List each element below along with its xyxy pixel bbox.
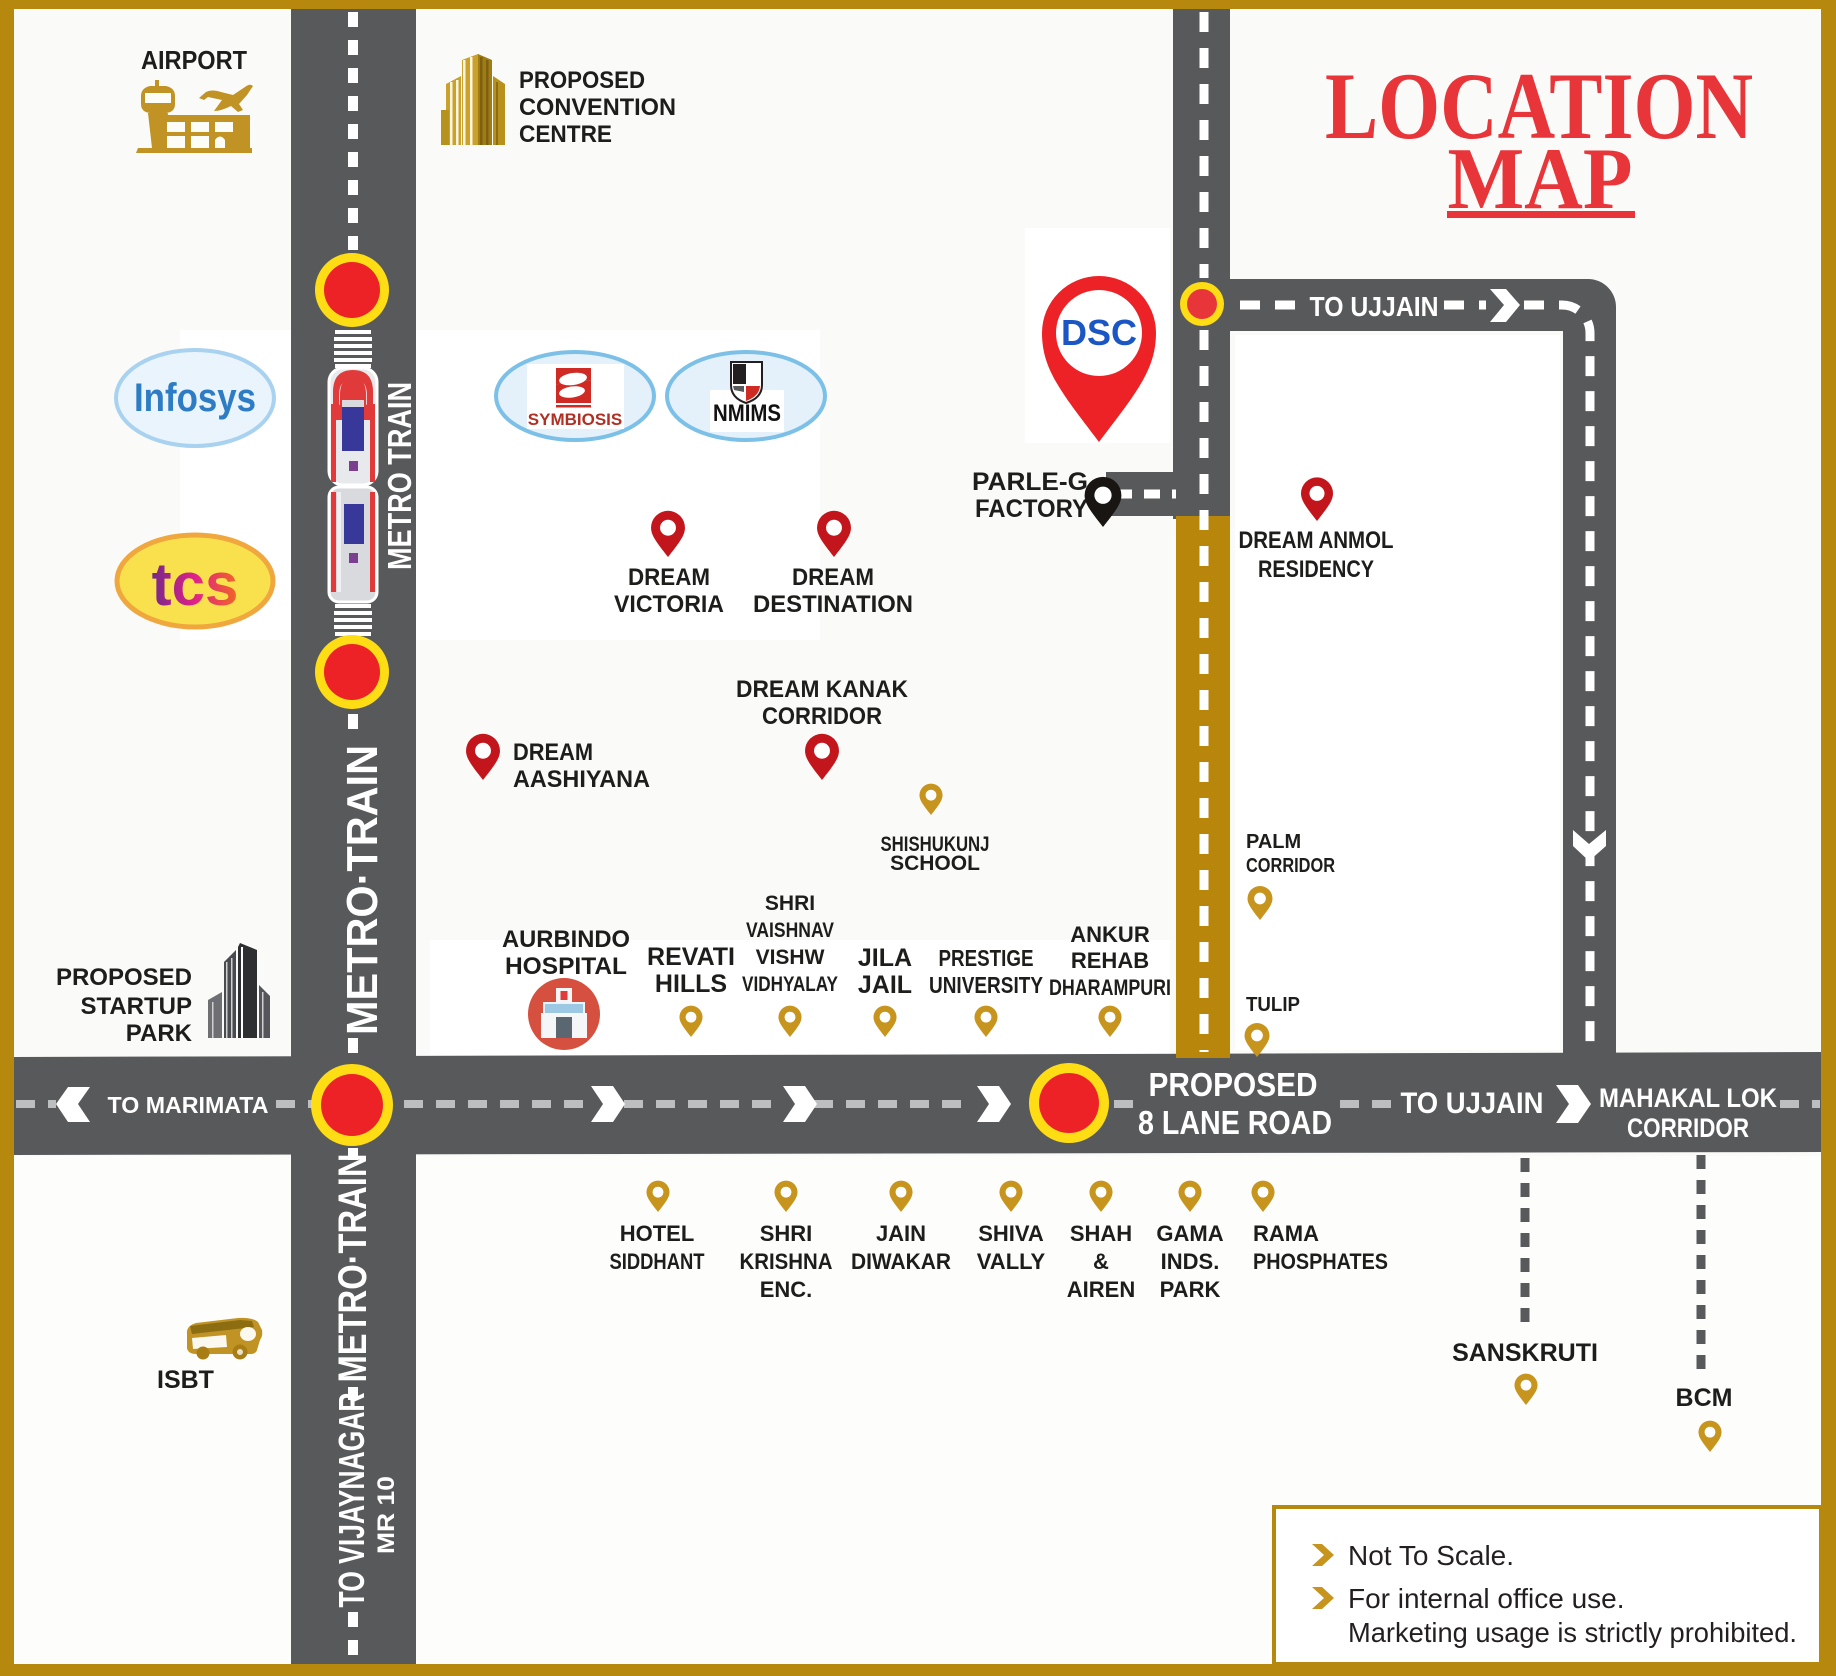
svg-text:TO UJJAIN: TO UJJAIN xyxy=(1401,1087,1544,1120)
svg-text:HOSPITAL: HOSPITAL xyxy=(505,953,627,980)
svg-text:STARTUP: STARTUP xyxy=(80,993,192,1020)
svg-text:CONVENTION: CONVENTION xyxy=(519,94,676,121)
svg-text:PROPOSED: PROPOSED xyxy=(1149,1066,1318,1103)
svg-text:PROPOSED: PROPOSED xyxy=(519,67,645,94)
svg-text:MR 10: MR 10 xyxy=(373,1476,400,1554)
svg-text:KRISHNA: KRISHNA xyxy=(740,1249,833,1274)
svg-text:JAIL: JAIL xyxy=(858,971,912,999)
svg-text:SCHOOL: SCHOOL xyxy=(890,852,980,875)
svg-text:FACTORY: FACTORY xyxy=(975,495,1088,523)
svg-text:DREAM: DREAM xyxy=(628,564,710,591)
svg-text:CORRIDOR: CORRIDOR xyxy=(762,703,882,730)
svg-text:HOTEL: HOTEL xyxy=(620,1221,695,1246)
svg-text:VISHW: VISHW xyxy=(756,946,825,969)
svg-text:REVATI: REVATI xyxy=(647,943,735,971)
svg-text:SYMBIOSIS: SYMBIOSIS xyxy=(528,410,622,429)
svg-text:DESTINATION: DESTINATION xyxy=(753,591,913,618)
svg-text:DIWAKAR: DIWAKAR xyxy=(851,1249,951,1274)
svg-text:PARLE-G: PARLE-G xyxy=(972,468,1088,496)
svg-text:8 LANE ROAD: 8 LANE ROAD xyxy=(1138,1104,1332,1141)
svg-text:JAIN: JAIN xyxy=(876,1221,926,1246)
svg-text:AURBINDO: AURBINDO xyxy=(502,926,630,953)
svg-text:GAMA: GAMA xyxy=(1156,1221,1223,1246)
svg-text:For internal office use.: For internal office use. xyxy=(1348,1583,1625,1614)
svg-text:DREAM KANAK: DREAM KANAK xyxy=(736,676,909,703)
svg-text:VALLY: VALLY xyxy=(977,1249,1046,1274)
svg-text:Infosys: Infosys xyxy=(134,376,256,420)
svg-text:NMIMS: NMIMS xyxy=(713,400,781,427)
svg-text:VAISHNAV: VAISHNAV xyxy=(746,919,834,942)
svg-text:TO MARIMATA: TO MARIMATA xyxy=(108,1092,269,1118)
svg-text:MAHAKAL LOK: MAHAKAL LOK xyxy=(1599,1083,1777,1113)
svg-text:ANKUR: ANKUR xyxy=(1070,922,1150,947)
svg-text:RESIDENCY: RESIDENCY xyxy=(1258,556,1374,583)
svg-text:METRO TRAIN: METRO TRAIN xyxy=(381,382,418,570)
svg-text:BCM: BCM xyxy=(1676,1384,1733,1412)
svg-text:DREAM ANMOL: DREAM ANMOL xyxy=(1239,527,1394,554)
svg-text:AASHIYANA: AASHIYANA xyxy=(513,766,650,793)
svg-text:VICTORIA: VICTORIA xyxy=(614,591,724,618)
svg-text:JILA: JILA xyxy=(858,944,912,972)
svg-text:PARK: PARK xyxy=(126,1020,193,1047)
svg-text:PARK: PARK xyxy=(1160,1277,1221,1302)
svg-text:SANSKRUTI: SANSKRUTI xyxy=(1452,1339,1598,1367)
svg-text:CENTRE: CENTRE xyxy=(519,121,612,148)
svg-text:tcs: tcs xyxy=(152,551,239,618)
svg-text:PHOSPHATES: PHOSPHATES xyxy=(1253,1249,1388,1274)
svg-text:SHIVA: SHIVA xyxy=(978,1221,1044,1246)
svg-text:PRESTIGE: PRESTIGE xyxy=(939,945,1034,971)
svg-text:METRO·TRAIN: METRO·TRAIN xyxy=(338,745,387,1035)
svg-text:SHRI: SHRI xyxy=(765,892,815,915)
svg-text:TO VIJAYNAGAR: TO VIJAYNAGAR xyxy=(331,1392,372,1607)
svg-text:ISBT: ISBT xyxy=(157,1366,214,1394)
svg-text:SHAH: SHAH xyxy=(1070,1221,1132,1246)
svg-text:DREAM: DREAM xyxy=(792,564,874,591)
svg-text:DHARAMPURI: DHARAMPURI xyxy=(1049,975,1171,1000)
svg-text:TO UJJAIN: TO UJJAIN xyxy=(1310,291,1439,322)
svg-text:CORRIDOR: CORRIDOR xyxy=(1246,855,1335,877)
svg-text:DREAM: DREAM xyxy=(513,739,593,766)
svg-text:DSC: DSC xyxy=(1061,312,1137,353)
svg-text:PROPOSED: PROPOSED xyxy=(56,964,192,991)
svg-text:SHRI: SHRI xyxy=(760,1221,813,1246)
svg-text:METRO·TRAIN: METRO·TRAIN xyxy=(331,1154,375,1383)
svg-text:CORRIDOR: CORRIDOR xyxy=(1627,1113,1749,1143)
svg-text:RAMA: RAMA xyxy=(1253,1221,1319,1246)
svg-text:AIRPORT: AIRPORT xyxy=(141,45,247,75)
svg-text:HILLS: HILLS xyxy=(655,970,727,998)
svg-text:Marketing usage is strictly pr: Marketing usage is strictly prohibited. xyxy=(1348,1617,1797,1648)
svg-text:AIREN: AIREN xyxy=(1067,1277,1135,1302)
svg-text:&: & xyxy=(1093,1249,1109,1274)
svg-text:INDS.: INDS. xyxy=(1161,1249,1220,1274)
svg-text:SIDDHANT: SIDDHANT xyxy=(610,1249,705,1274)
svg-text:TULIP: TULIP xyxy=(1246,994,1300,1016)
svg-text:ENC.: ENC. xyxy=(760,1277,813,1302)
svg-text:Not To Scale.: Not To Scale. xyxy=(1348,1540,1514,1571)
svg-text:UNIVERSITY: UNIVERSITY xyxy=(929,972,1043,998)
svg-text:REHAB: REHAB xyxy=(1071,948,1149,973)
svg-text:VIDHYALAY: VIDHYALAY xyxy=(742,973,838,996)
svg-text:PALM: PALM xyxy=(1246,831,1301,853)
